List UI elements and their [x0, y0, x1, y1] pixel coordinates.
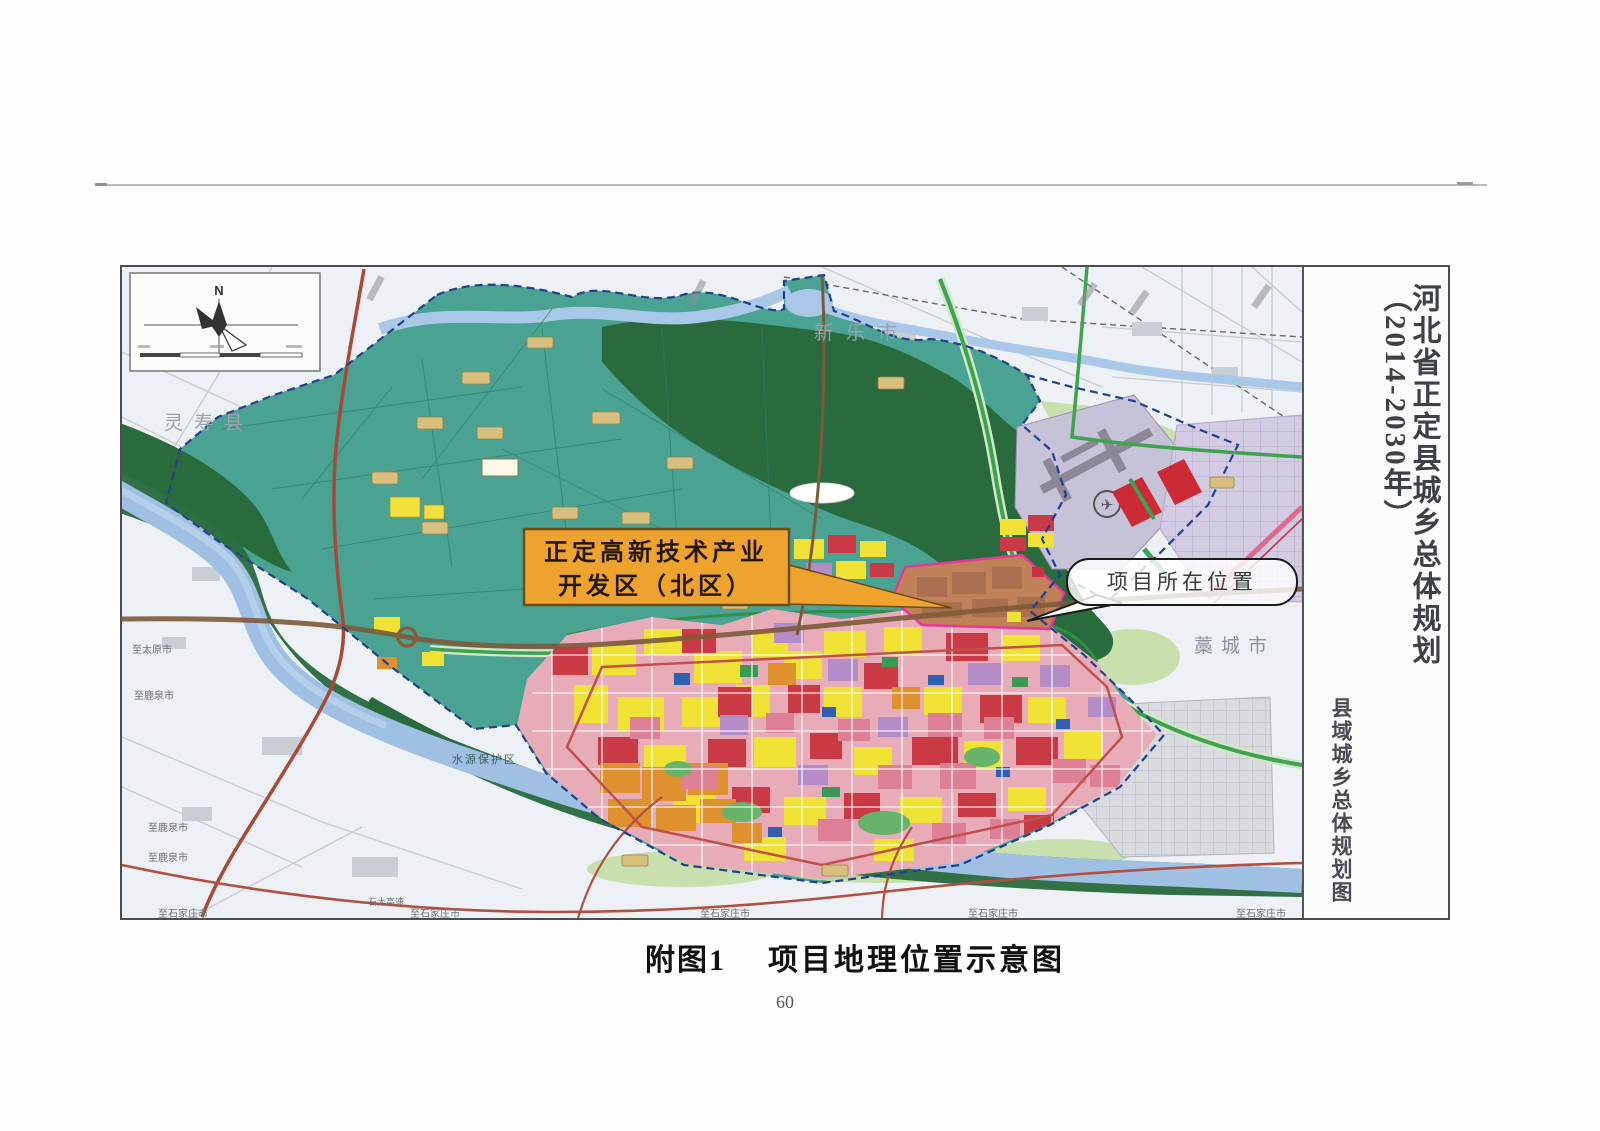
town-tag: [482, 459, 518, 476]
label-to-luquan-1: 至鹿泉市: [134, 689, 174, 702]
airplane-icon: ✈: [1101, 497, 1114, 514]
label-water-protect: 水源保护区: [452, 752, 517, 766]
map-title-panel: 河北省正定县城乡总体规划（2014-2030年） 县域城乡总体规划图: [1304, 267, 1448, 918]
label-xinle: 新乐市: [814, 322, 910, 344]
project-callout-text: 项目所在位置: [1107, 571, 1257, 594]
label-to-taiyuan: 至太原市: [132, 643, 172, 656]
rule-tick-right: [1457, 182, 1473, 185]
label-to-luquan-3: 至鹿泉市: [148, 851, 188, 864]
figure-caption-title: 项目地理位置示意图: [768, 944, 1065, 977]
rule-tick-left: [95, 183, 107, 186]
north-label: N: [214, 283, 223, 298]
page-top-rule: [95, 184, 1487, 186]
devzone-line1: 正定高新技术产业: [544, 538, 768, 566]
devzone-line2: 开发区（北区）: [558, 572, 754, 600]
label-to-sjz-5: 至石家庄市: [1236, 907, 1286, 918]
map-main-title: 河北省正定县城乡总体规划（2014-2030年）: [1380, 283, 1438, 753]
page-number: 60: [0, 992, 1570, 1013]
label-to-sjz-2: 至石家庄市: [410, 907, 460, 918]
map-canvas: ✈: [122, 267, 1302, 918]
label-shitai-expwy: 石太高速: [368, 896, 404, 907]
figure-caption: 附图1项目地理位置示意图: [120, 935, 1450, 979]
label-to-sjz-4: 至石家庄市: [968, 907, 1018, 918]
compass-box: N: [130, 273, 320, 371]
label-gaocheng: 藁城市: [1194, 635, 1275, 657]
label-to-sjz-1: 至石家庄市: [158, 907, 208, 918]
map-sub-title: 县域城乡总体规划图: [1330, 697, 1351, 907]
map-figure: ✈: [120, 265, 1450, 920]
figure-caption-label: 附图1: [645, 944, 726, 977]
planning-map: ✈: [122, 267, 1302, 918]
label-to-sjz-3: 至石家庄市: [700, 907, 750, 918]
label-lingshou: 灵寿县: [164, 412, 254, 434]
label-to-luquan-2: 至鹿泉市: [148, 821, 188, 834]
